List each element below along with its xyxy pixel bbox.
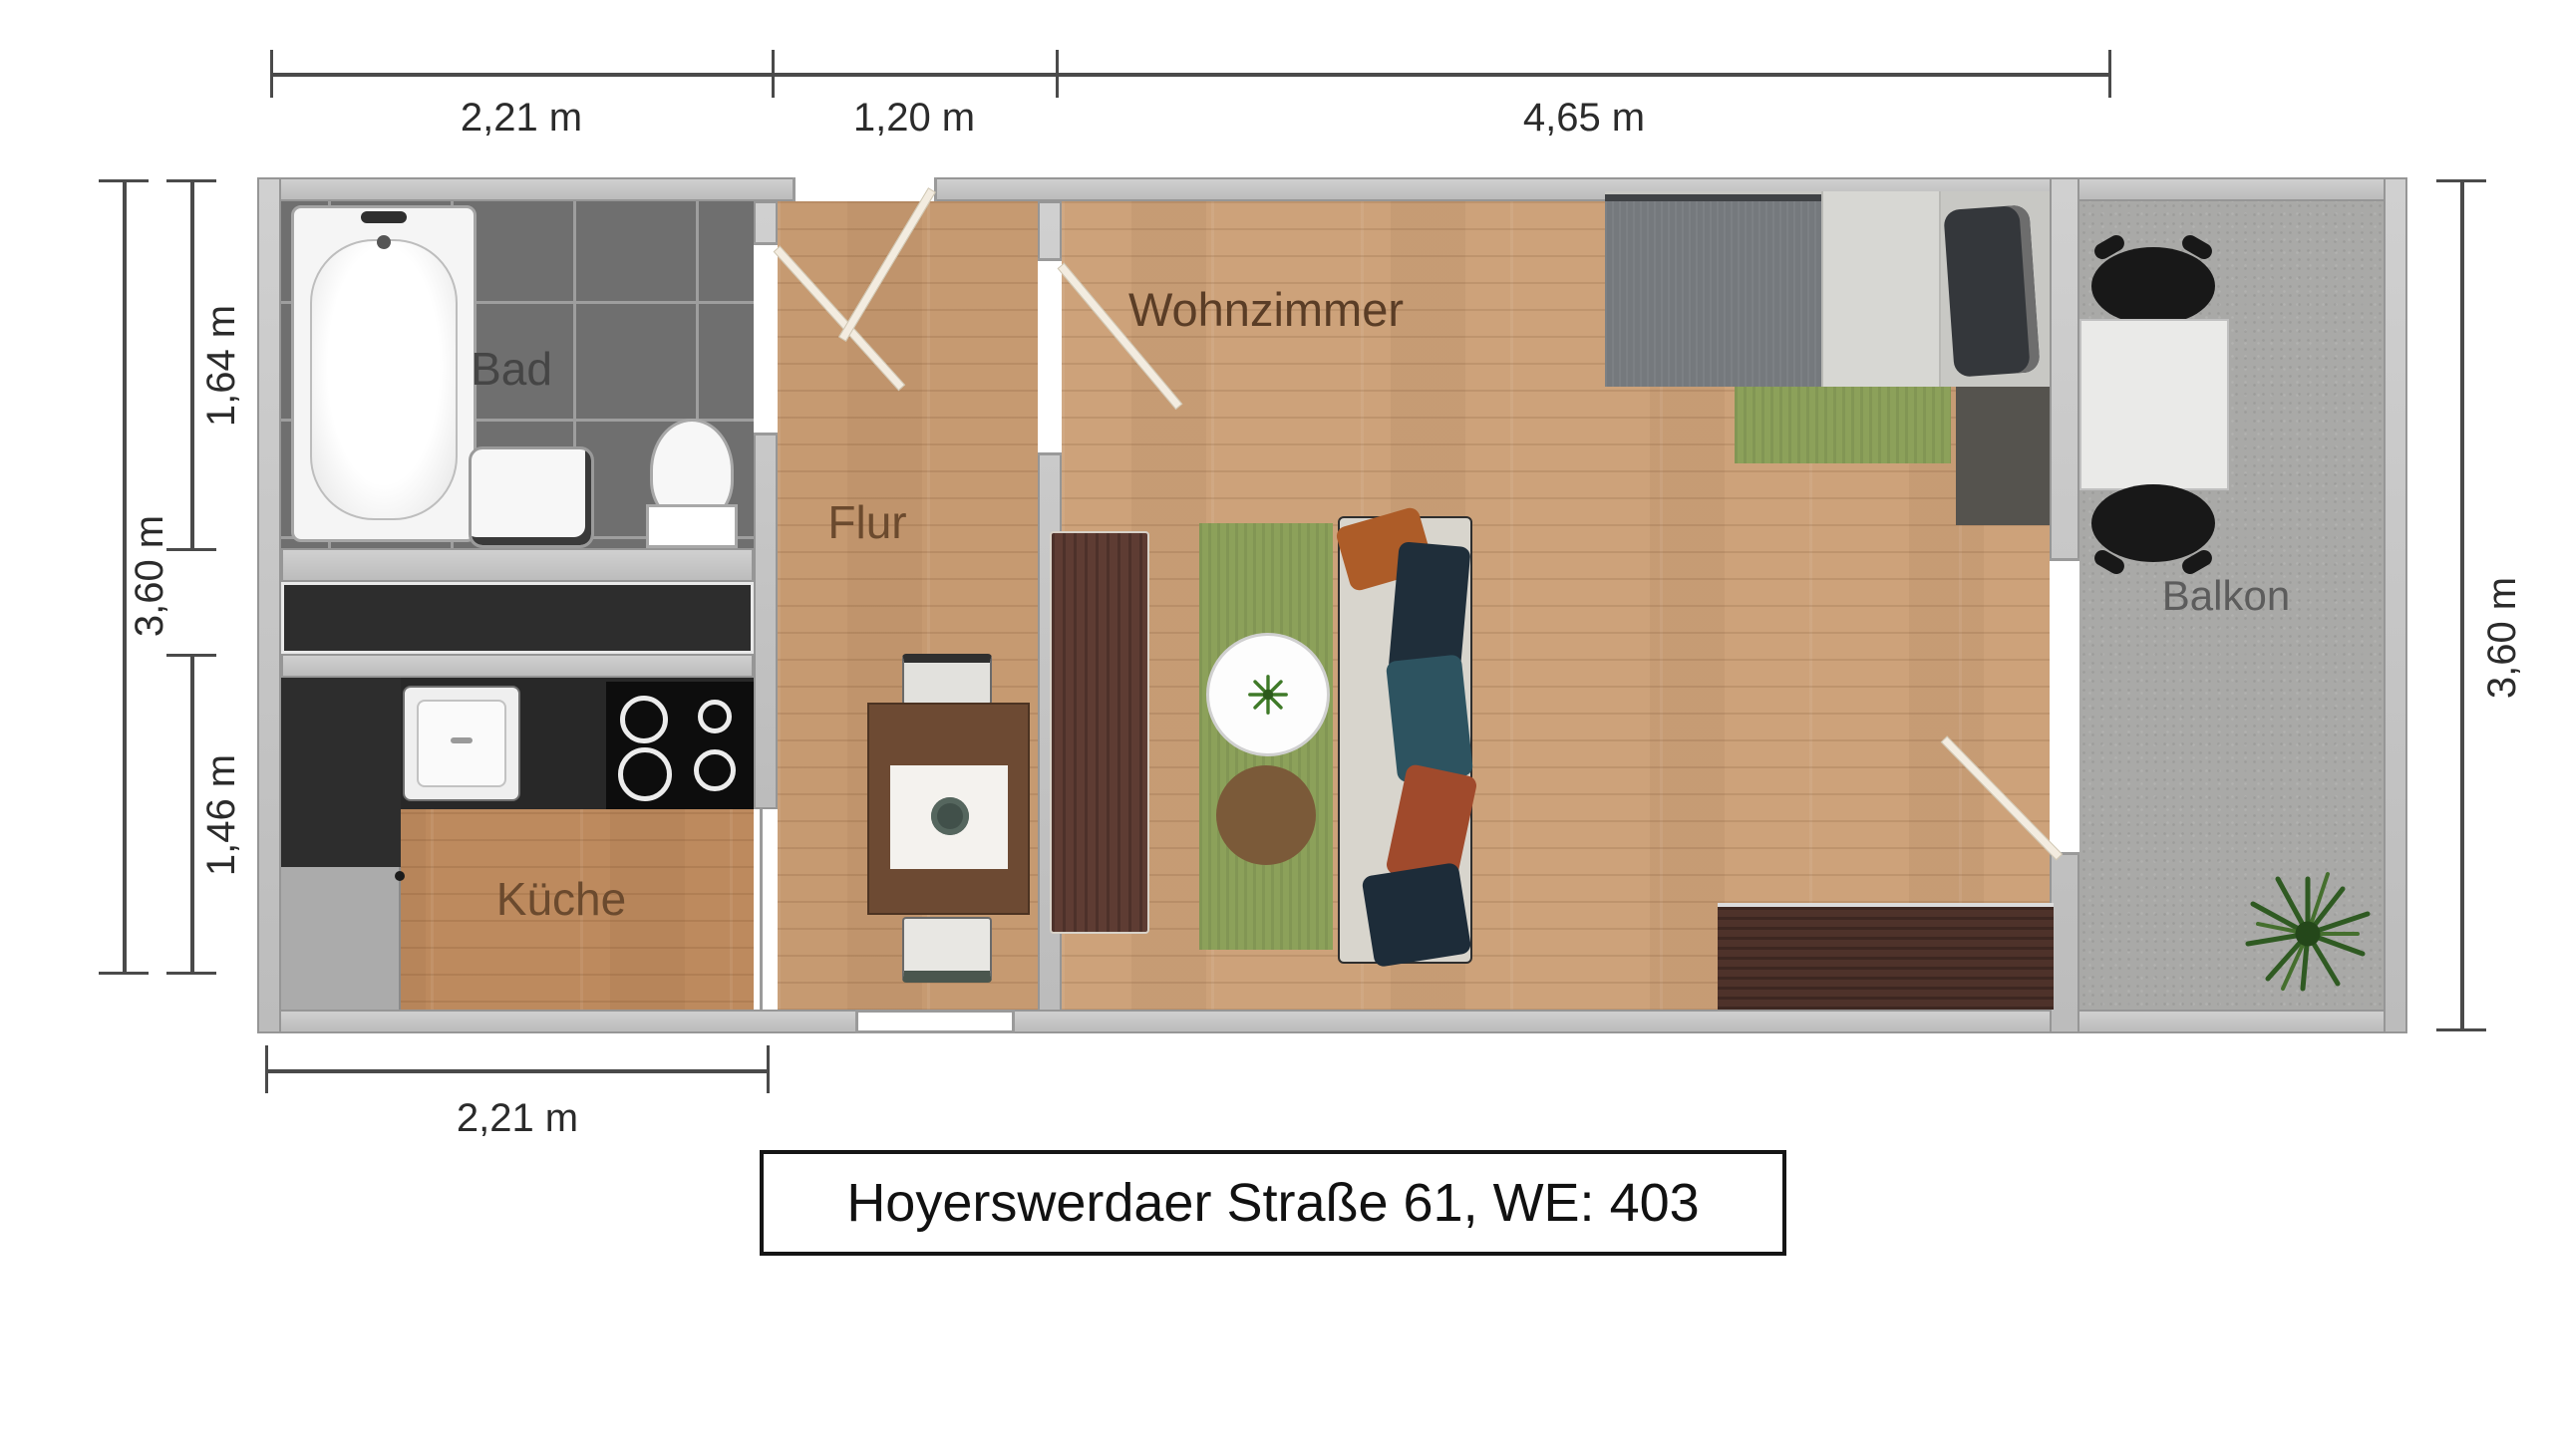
cabinet-handle <box>395 871 405 881</box>
chair-icon-bottom <box>902 917 992 983</box>
wall-balcony-right <box>2384 177 2407 1033</box>
dim-left-outer-line <box>123 181 127 974</box>
dim-top-tick-3 <box>1056 50 1059 98</box>
entry-door-opening <box>793 177 937 201</box>
dim-label-top-3: 4,65 m <box>1474 96 1694 140</box>
dim-left-inner-b-tick-bottom <box>166 972 216 975</box>
plant-icon <box>1242 669 1294 721</box>
bathtub-faucet-icon <box>361 211 407 223</box>
room-label-flur: Flur <box>797 496 937 548</box>
balcony-table-icon <box>2079 319 2229 490</box>
rug-runner-icon <box>1050 531 1149 934</box>
dim-bottom-tick-left <box>265 1045 268 1093</box>
wohnzimmer-door-opening <box>1038 258 1062 455</box>
dim-left-inner-b-tick-top <box>166 654 216 657</box>
kitchen-faucet-icon <box>451 737 473 743</box>
room-label-bad: Bad <box>437 343 586 395</box>
wall-below-bad <box>281 548 754 582</box>
dim-label-left-total: 3,60 m <box>128 496 171 656</box>
stove-burner-4 <box>694 749 736 791</box>
wall-above-kueche <box>281 654 754 678</box>
dim-label-top-1: 2,21 m <box>412 96 631 140</box>
balcony-chair-icon-top <box>2091 247 2215 325</box>
sofa-pillow-teal <box>1386 654 1473 782</box>
dim-left-inner-line-a <box>190 181 194 550</box>
dim-bottom-tick-right <box>767 1045 770 1093</box>
round-rug-brown <box>1216 765 1316 865</box>
dim-left-outer-tick-bottom <box>99 972 149 975</box>
room-label-balkon: Balkon <box>2141 570 2311 622</box>
wall-top <box>257 177 2407 201</box>
dim-label-left-bad: 1,64 m <box>199 286 243 445</box>
chair-icon-top <box>902 654 992 706</box>
dim-label-bottom: 2,21 m <box>418 1096 617 1140</box>
dim-left-inner-a-tick-top <box>166 179 216 182</box>
dim-right-line <box>2460 181 2464 1031</box>
toilet-tank <box>646 504 738 548</box>
window-bottom-flur <box>855 1010 1015 1033</box>
stove-burner-3 <box>698 700 732 733</box>
rug-green-bed <box>1735 387 1951 463</box>
bathtub-drain <box>377 235 391 249</box>
kitchen-counter-left <box>281 678 401 867</box>
kitchen-cabinet <box>281 867 401 1010</box>
plan-title: Hoyerswerdaer Straße 61, WE: 403 <box>846 1172 1699 1234</box>
bed-sheet <box>1821 191 1941 387</box>
balkon-door-opening <box>2050 558 2079 855</box>
bed-pillow-icon <box>1943 204 2041 378</box>
plan-title-box: Hoyerswerdaer Straße 61, WE: 403 <box>760 1150 1786 1256</box>
rug-dark-bottom <box>1718 903 2054 1010</box>
shaft <box>281 582 754 654</box>
dim-right-tick-top <box>2436 179 2486 182</box>
dresser-icon <box>1956 387 2050 525</box>
room-label-kueche: Küche <box>467 873 656 925</box>
dim-left-inner-a-tick-bottom <box>166 548 216 551</box>
dim-label-right: 3,60 m <box>2480 558 2524 718</box>
kueche-flur-threshold <box>760 809 763 1010</box>
dim-left-outer-tick-top <box>99 179 149 182</box>
balcony-plant-icon <box>2233 859 2383 999</box>
plate-icon <box>931 797 969 835</box>
coffee-table-icon <box>1206 633 1330 756</box>
stove-burner-2 <box>618 747 672 801</box>
dim-top-tick-4 <box>2108 50 2111 98</box>
dim-bottom-line <box>266 1069 770 1073</box>
dim-top-line <box>271 73 2111 77</box>
dim-label-left-kueche: 1,46 m <box>199 735 243 895</box>
kitchen-sink-basin <box>417 700 506 787</box>
room-label-wohnzimmer: Wohnzimmer <box>1092 281 1440 337</box>
dim-top-tick-1 <box>270 50 273 98</box>
washbasin-icon <box>469 446 594 548</box>
floorplan-canvas: 2,21 m 1,20 m 4,65 m 3,60 m 1,64 m 1,46 … <box>0 0 2552 1456</box>
bathtub-basin <box>310 239 458 520</box>
dim-top-tick-2 <box>772 50 775 98</box>
bed-duvet <box>1605 194 1821 387</box>
dim-label-top-2: 1,20 m <box>804 96 1024 140</box>
sofa-pillow-navy-bottom <box>1361 862 1471 968</box>
dim-right-tick-bottom <box>2436 1028 2486 1031</box>
stove-burner-1 <box>620 696 668 743</box>
wall-left <box>257 177 281 1033</box>
wall-bottom <box>257 1010 2407 1033</box>
dim-left-inner-line-b <box>190 656 194 974</box>
balcony-chair-icon-bottom <box>2091 484 2215 562</box>
bad-door-opening <box>754 242 778 436</box>
